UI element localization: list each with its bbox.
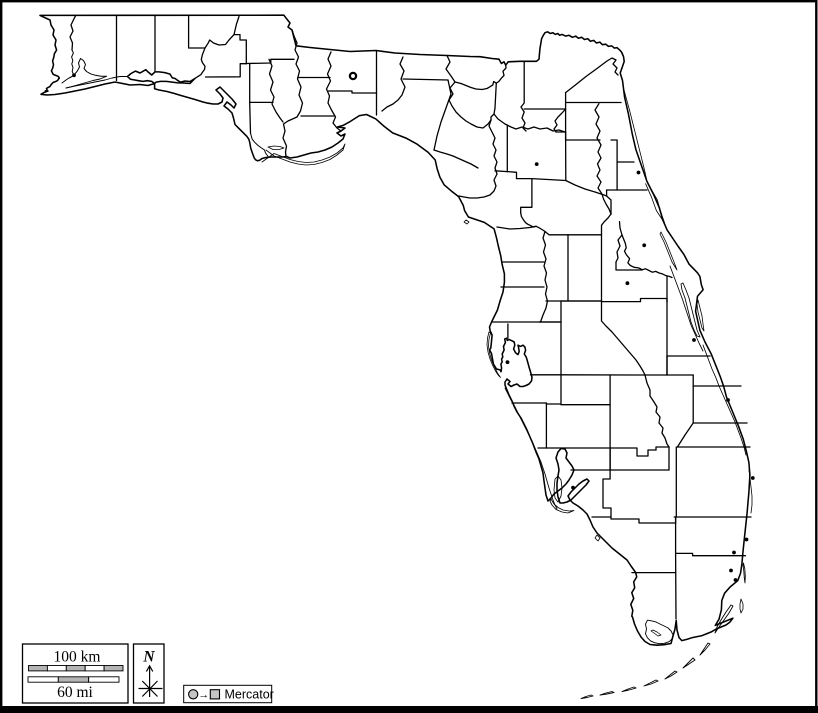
svg-text:60 mi: 60 mi [57,684,93,701]
svg-text:N: N [142,649,155,666]
svg-text:→: → [198,689,209,701]
svg-text:Mercator: Mercator [225,688,274,702]
svg-text:100 km: 100 km [54,649,101,666]
